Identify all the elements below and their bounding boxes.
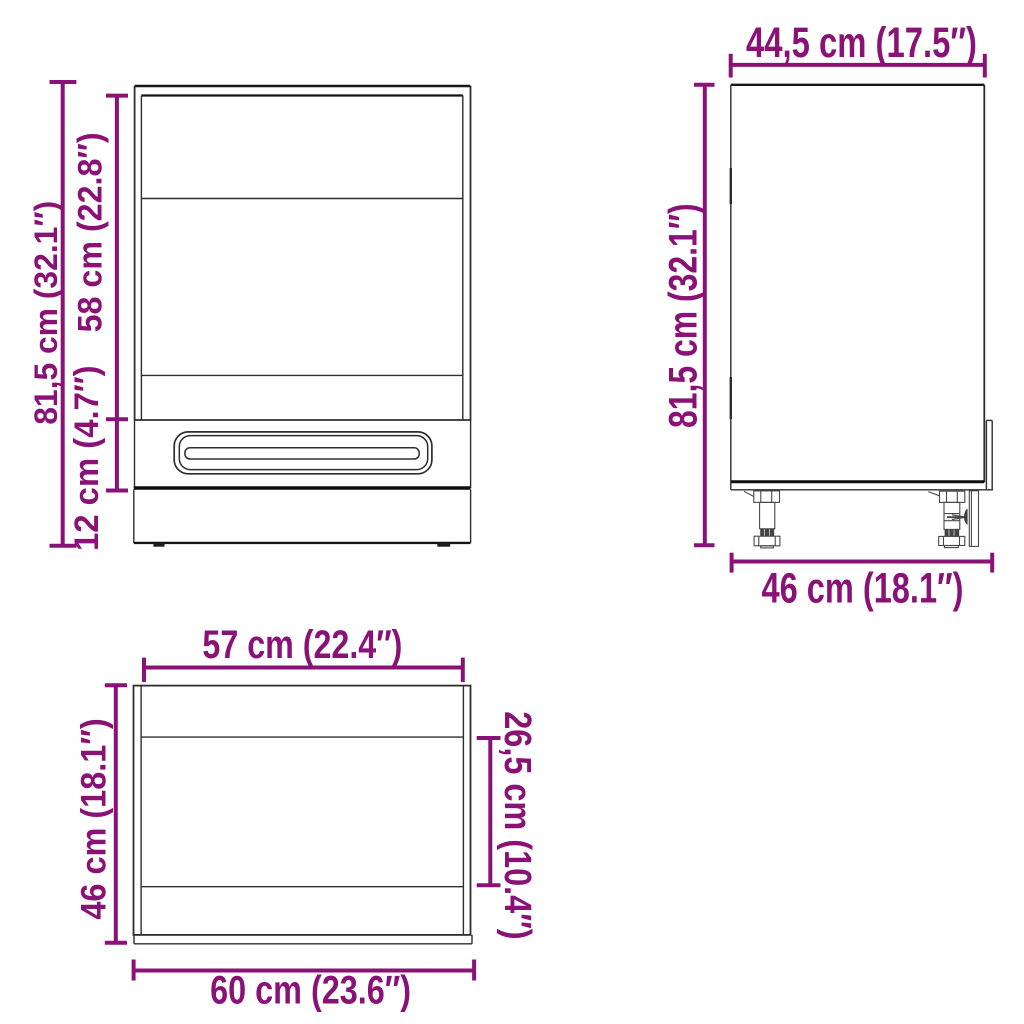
svg-text:44,5 cm (17.5″): 44,5 cm (17.5″) <box>746 19 977 67</box>
svg-text:46 cm (18.1″): 46 cm (18.1″) <box>75 718 114 919</box>
svg-text:12 cm (4.7″): 12 cm (4.7″) <box>68 365 106 551</box>
svg-text:57 cm (22.4″): 57 cm (22.4″) <box>202 623 402 667</box>
svg-text:81,5 cm (32.1″): 81,5 cm (32.1″) <box>662 203 706 428</box>
svg-text:60 cm (23.6″): 60 cm (23.6″) <box>210 969 411 1013</box>
svg-text:26,5 cm (10.4″): 26,5 cm (10.4″) <box>496 711 538 939</box>
svg-text:58 cm (22.8″): 58 cm (22.8″) <box>72 132 110 332</box>
svg-text:46 cm (18.1″): 46 cm (18.1″) <box>762 565 964 613</box>
svg-text:81,5 cm (32.1″): 81,5 cm (32.1″) <box>28 201 64 425</box>
